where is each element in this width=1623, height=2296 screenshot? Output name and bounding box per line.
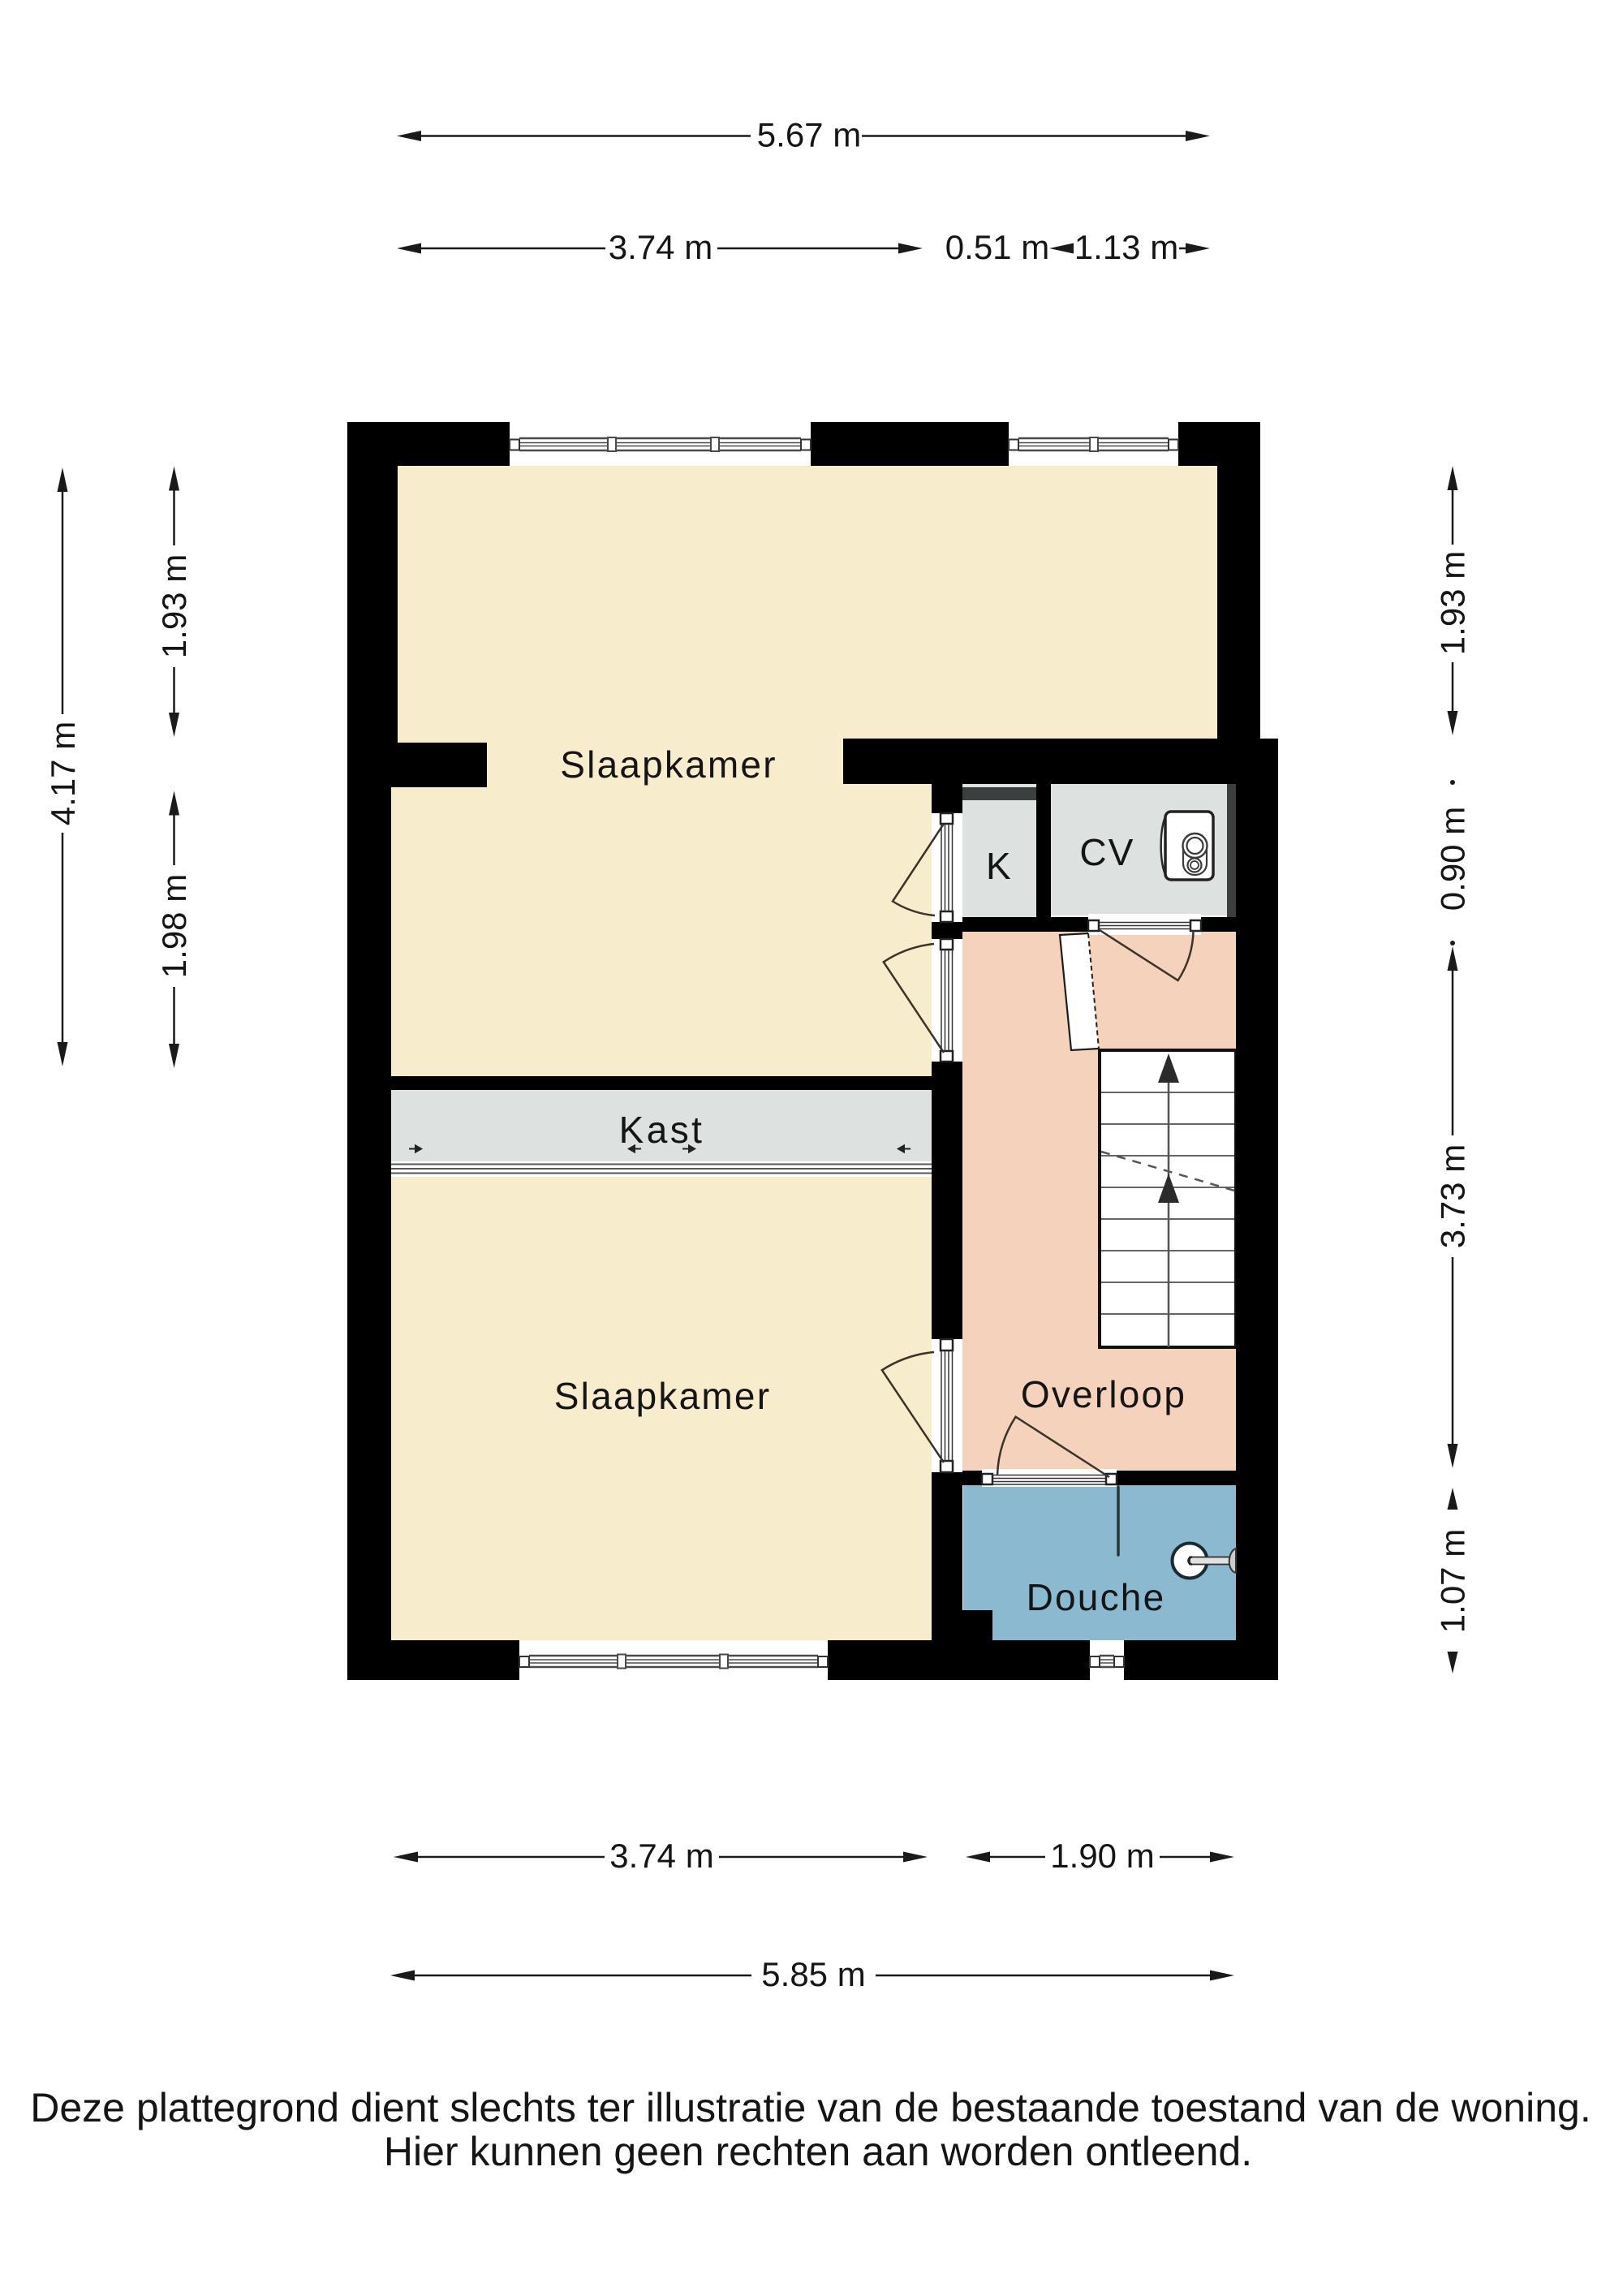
svg-text:1.07 m: 1.07 m: [1434, 1529, 1472, 1633]
svg-text:Kast: Kast: [619, 1109, 705, 1151]
svg-text:Overloop: Overloop: [1021, 1373, 1186, 1415]
svg-text:4.17 m: 4.17 m: [44, 722, 82, 825]
svg-text:5.85 m: 5.85 m: [761, 1955, 865, 1993]
svg-text:1.13 m: 1.13 m: [1074, 228, 1178, 266]
svg-text:CV: CV: [1079, 831, 1134, 873]
svg-text:1.93 m: 1.93 m: [155, 554, 193, 658]
svg-text:Douche: Douche: [1027, 1576, 1166, 1618]
svg-text:1.90 m: 1.90 m: [1050, 1837, 1154, 1875]
svg-text:3.74 m: 3.74 m: [609, 228, 712, 266]
svg-text:1.98 m: 1.98 m: [155, 874, 193, 978]
svg-text:Hier kunnen geen rechten aan w: Hier kunnen geen rechten aan worden ontl…: [384, 2129, 1252, 2174]
svg-text:Deze plattegrond dient slechts: Deze plattegrond dient slechts ter illus…: [30, 2085, 1591, 2130]
svg-text:3.74 m: 3.74 m: [609, 1837, 713, 1875]
svg-text:1.93 m: 1.93 m: [1434, 551, 1472, 655]
svg-text:K: K: [986, 845, 1013, 887]
svg-text:Slaapkamer: Slaapkamer: [560, 743, 777, 786]
svg-text:3.73 m: 3.73 m: [1434, 1144, 1472, 1248]
svg-text:Slaapkamer: Slaapkamer: [554, 1375, 771, 1417]
svg-text:0.90 m: 0.90 m: [1434, 807, 1472, 911]
svg-text:0.51 m: 0.51 m: [945, 228, 1049, 266]
svg-text:5.67 m: 5.67 m: [757, 116, 861, 154]
